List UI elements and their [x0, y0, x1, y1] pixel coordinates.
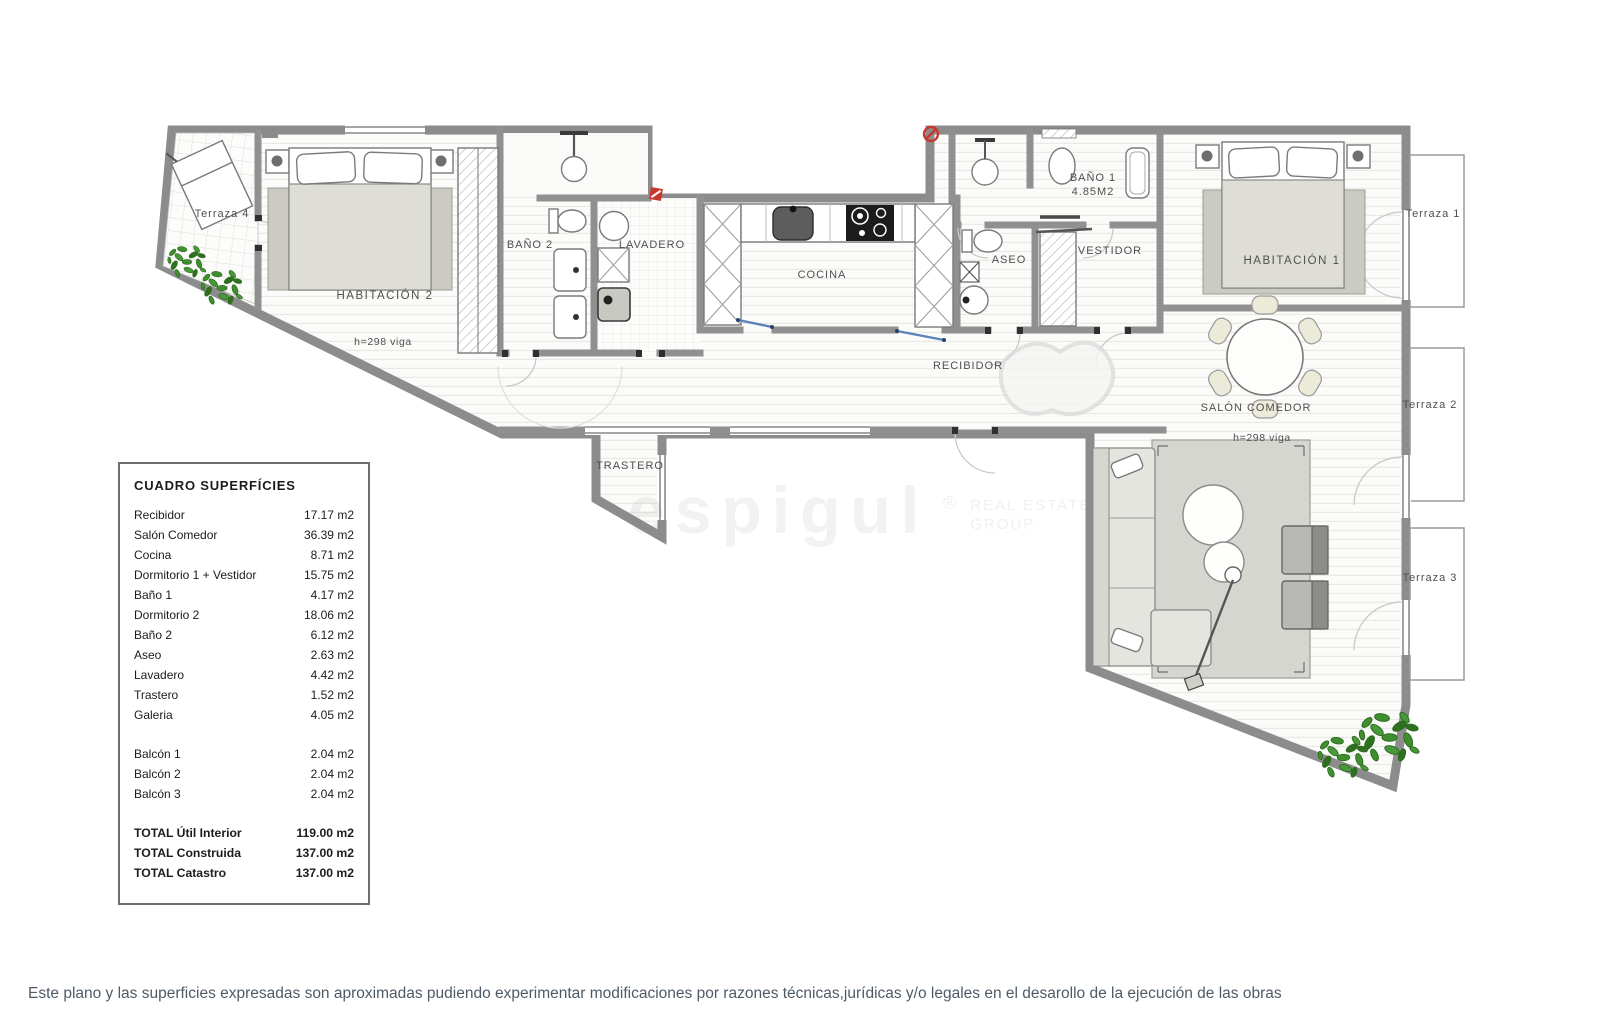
shower-head: [562, 157, 587, 182]
label-vestidor: VESTIDOR: [1078, 245, 1142, 257]
total-label: TOTAL Construida: [134, 843, 241, 863]
table-row: Cocina8.71 m2: [134, 545, 354, 565]
label-terraza2: Terraza 2: [1403, 399, 1458, 411]
armchair: [1282, 581, 1328, 629]
terraza2-box: [1410, 348, 1464, 501]
row-value: 1.52 m2: [311, 685, 354, 705]
round-sink: [600, 212, 629, 241]
lavadero-fixtures: [598, 212, 630, 322]
row-label: Baño 1: [134, 585, 172, 605]
wardrobe1: [1040, 232, 1076, 326]
table-row: Balcón 32.04 m2: [134, 784, 354, 804]
lamp-icon: [1353, 151, 1364, 162]
table-row: Dormitorio 1 + Vestidor15.75 m2: [134, 565, 354, 585]
window-corridor-1: [585, 424, 710, 435]
row-value: 36.39 m2: [304, 525, 354, 545]
vent: [1042, 129, 1076, 138]
total-value: 119.00 m2: [296, 823, 354, 843]
row-label: Recibidor: [134, 505, 185, 525]
bed1-duvet: [1222, 180, 1344, 288]
label-terraza4: Terraza 4: [195, 208, 250, 220]
table-total-row: TOTAL Útil Interior119.00 m2: [134, 823, 354, 843]
bano2-fixtures: [549, 209, 586, 338]
row-label: Cocina: [134, 545, 171, 565]
terrace-door-salon-1: [1400, 455, 1411, 518]
wall-pillar: [262, 126, 278, 138]
table-row: Baño 14.17 m2: [134, 585, 354, 605]
row-label: Trastero: [134, 685, 178, 705]
table-row: Galeria4.05 m2: [134, 705, 354, 725]
faucet-icon: [573, 314, 579, 320]
label-terraza1: Terraza 1: [1406, 208, 1461, 220]
faucet-icon: [790, 206, 797, 213]
table-row: Balcón 12.04 m2: [134, 744, 354, 764]
row-label: Aseo: [134, 645, 161, 665]
row-value: 2.04 m2: [311, 784, 354, 804]
total-label: TOTAL Catastro: [134, 863, 226, 883]
total-value: 137.00 m2: [296, 863, 354, 883]
row-label: Balcón 1: [134, 744, 181, 764]
row-value: 17.17 m2: [304, 505, 354, 525]
label-viga2: h=298 viga: [1233, 432, 1291, 444]
table-total-row: TOTAL Catastro137.00 m2: [134, 863, 354, 883]
total-label: TOTAL Útil Interior: [134, 823, 242, 843]
hand-sketch-watermark: [1001, 342, 1113, 414]
lamp-icon: [1202, 151, 1213, 162]
label-cocina: COCINA: [798, 269, 847, 281]
bathtub: [1126, 148, 1149, 198]
red-markers: [649, 127, 938, 201]
label-lavadero: LAVADERO: [619, 239, 685, 251]
table-row: Balcón 22.04 m2: [134, 764, 354, 784]
pillow: [1286, 147, 1337, 179]
label-bano1: BAÑO 1: [1070, 171, 1116, 184]
table-row: Baño 26.12 m2: [134, 625, 354, 645]
label-viga1: h=298 viga: [354, 336, 412, 348]
label-bano2: BAÑO 2: [507, 238, 553, 251]
row-value: 2.04 m2: [311, 764, 354, 784]
row-value: 6.12 m2: [311, 625, 354, 645]
toilet-bowl: [558, 210, 586, 232]
window-top-hab2: [345, 124, 425, 135]
table-row: Trastero1.52 m2: [134, 685, 354, 705]
surface-table-title: CUADRO SUPERFÍCIES: [134, 478, 354, 493]
toilet-bowl: [974, 230, 1002, 252]
row-value: 4.17 m2: [311, 585, 354, 605]
row-value: 4.05 m2: [311, 705, 354, 725]
table-spacer: [134, 725, 354, 744]
floorplan-page: { "plan": { "labels": { "terraza4": "Ter…: [0, 0, 1600, 1035]
terrace-door-hab1: [1400, 210, 1411, 300]
terraza3-box: [1410, 528, 1464, 680]
pillow: [296, 152, 355, 185]
label-salon: SALÓN COMEDOR: [1201, 401, 1312, 414]
label-habitacion1: HABITACIÓN 1: [1243, 254, 1340, 267]
armchair: [1282, 526, 1328, 574]
habitacion1-furniture: [1196, 142, 1370, 294]
label-trastero: TRASTERO: [596, 460, 664, 472]
table-total-row: TOTAL Construida137.00 m2: [134, 843, 354, 863]
row-value: 4.42 m2: [311, 665, 354, 685]
pillow: [363, 152, 422, 184]
row-value: 8.71 m2: [311, 545, 354, 565]
row-value: 15.75 m2: [304, 565, 354, 585]
row-label: Dormitorio 2: [134, 605, 199, 625]
toilet-tank: [549, 209, 558, 233]
row-label: Salón Comedor: [134, 525, 217, 545]
pedestal-sink: [972, 159, 998, 185]
bed2-duvet: [289, 184, 431, 290]
row-value: 18.06 m2: [304, 605, 354, 625]
row-label: Balcón 3: [134, 784, 181, 804]
label-bano1-area: 4.85M2: [1072, 186, 1115, 198]
terraza1-box: [1410, 155, 1464, 307]
table-row: Salón Comedor36.39 m2: [134, 525, 354, 545]
table-row: Aseo2.63 m2: [134, 645, 354, 665]
dining-table: [1227, 319, 1303, 395]
faucet-icon: [573, 267, 579, 273]
label-habitacion2: HABITACIÓN 2: [336, 289, 433, 302]
washing-machine: [598, 288, 630, 321]
label-terraza3: Terraza 3: [1403, 572, 1458, 584]
total-value: 137.00 m2: [296, 843, 354, 863]
row-label: Lavadero: [134, 665, 184, 685]
row-value: 2.63 m2: [311, 645, 354, 665]
sink-vanity: [554, 296, 586, 338]
surface-table: CUADRO SUPERFÍCIES Recibidor17.17 m2 Sal…: [118, 462, 370, 905]
stove: [846, 205, 894, 241]
row-label: Galeria: [134, 705, 173, 725]
row-label: Balcón 2: [134, 764, 181, 784]
terrace-door-salon-2: [1400, 600, 1411, 655]
row-label: Dormitorio 1 + Vestidor: [134, 565, 256, 585]
row-value: 2.04 m2: [311, 744, 354, 764]
disclaimer-text: Este plano y las superficies expresadas …: [28, 985, 1568, 1003]
pillow: [1228, 147, 1279, 179]
toilet-tank: [962, 230, 972, 252]
table-row: Dormitorio 218.06 m2: [134, 605, 354, 625]
table-row: Lavadero4.42 m2: [134, 665, 354, 685]
red-marker-icon: [649, 187, 663, 201]
table-row: Recibidor17.17 m2: [134, 505, 354, 525]
sink-vanity: [554, 249, 586, 291]
lamp-icon: [272, 156, 283, 167]
label-recibidor: RECIBIDOR: [933, 360, 1003, 372]
lamp-icon: [436, 156, 447, 167]
terraces-right: [1410, 155, 1464, 680]
label-aseo: ASEO: [992, 254, 1027, 266]
row-label: Baño 2: [134, 625, 172, 645]
window-corridor-2: [730, 424, 870, 435]
table-spacer: [134, 804, 354, 823]
washer-knob: [604, 296, 613, 305]
